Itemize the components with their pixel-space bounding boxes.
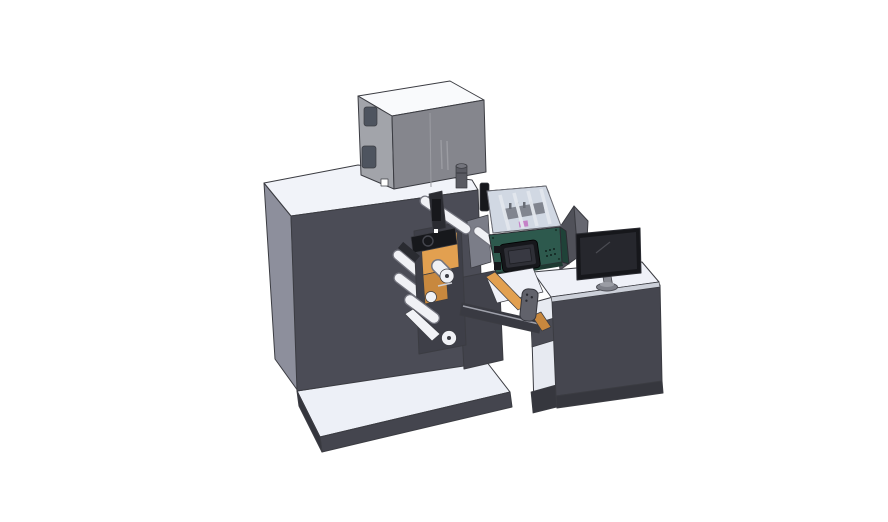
printer-box-vent-slot xyxy=(441,140,442,169)
vent-dot xyxy=(546,255,548,257)
vent-dot xyxy=(545,250,547,252)
cylinder-cap xyxy=(456,164,467,169)
connector-port xyxy=(494,246,501,253)
printer-box-front-face xyxy=(392,100,486,189)
sensor-knob xyxy=(416,244,422,250)
transparent-cover xyxy=(487,186,561,233)
sensor-bracket xyxy=(519,288,538,321)
screw-dot xyxy=(492,237,494,239)
printer-box-badge xyxy=(381,179,388,186)
monitor-screen[interactable] xyxy=(580,232,637,275)
desk-front-face xyxy=(552,285,662,396)
idler-end-disc xyxy=(426,292,437,303)
mandrel-core xyxy=(445,274,449,278)
hmi-screen[interactable] xyxy=(508,248,532,264)
cylinder-body xyxy=(456,166,467,188)
dancer-arm-inner xyxy=(432,199,441,221)
monitor-base-top xyxy=(600,282,614,287)
cad-render-canvas xyxy=(0,0,888,522)
bracket-body xyxy=(519,288,538,321)
vent-dot xyxy=(554,253,556,255)
sensor-marker xyxy=(434,229,438,233)
printer-box-vent-slot xyxy=(447,141,448,170)
operator-desk xyxy=(531,262,663,413)
lower-disc-core xyxy=(447,336,451,340)
vent-dot xyxy=(550,254,552,256)
screw-dot xyxy=(555,229,557,231)
cylinder-fitting xyxy=(456,164,467,188)
sensor-lens xyxy=(423,236,433,246)
print-module xyxy=(487,186,569,277)
hmi-panel xyxy=(499,239,541,272)
vent-dot xyxy=(549,249,551,251)
vent-dot xyxy=(553,248,555,250)
screw-dot xyxy=(558,258,560,260)
printer-box-hinge xyxy=(362,146,376,168)
machine-render xyxy=(0,0,888,522)
connector-port xyxy=(494,262,501,270)
printer-box-hinge xyxy=(364,107,377,126)
